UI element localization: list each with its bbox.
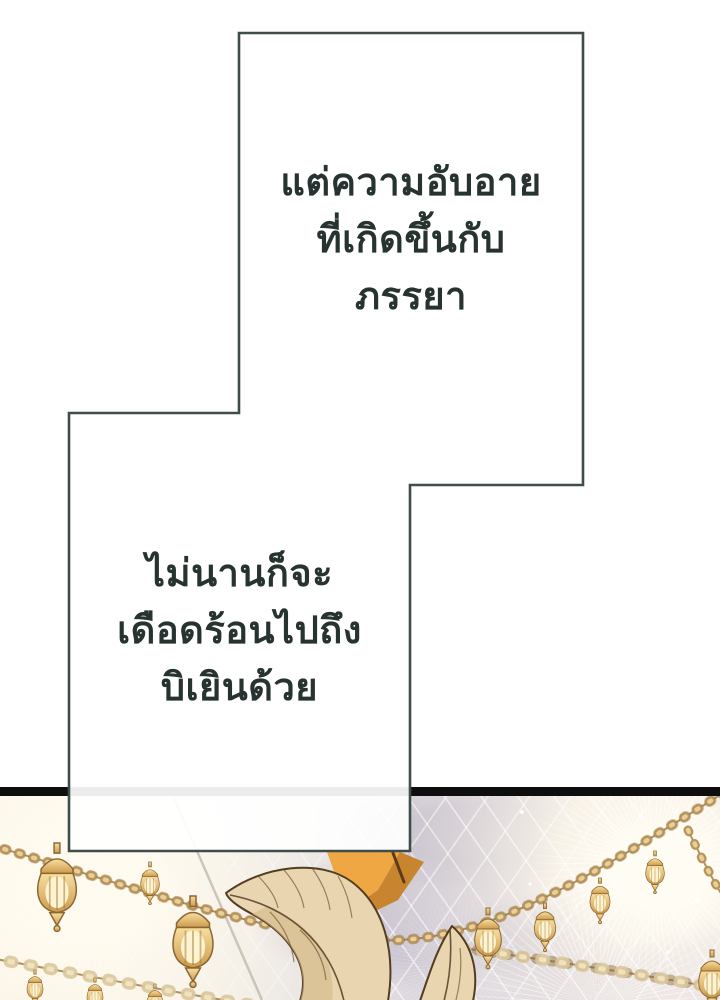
narration-box-2: ไม่นานก็จะ เดือดร้อนไปถึง บิเยินด้วย <box>69 413 410 851</box>
narration-text-line: เดือดร้อนไปถึง <box>117 608 362 652</box>
narration-text-line: บิเยินด้วย <box>161 665 318 709</box>
narration-text-line: ภรรยา <box>355 274 467 318</box>
narration-text-line: ไม่นานก็จะ <box>146 551 333 595</box>
narration-text-line: ที่เกิดขึ้นกับ <box>317 217 506 261</box>
chain-garland <box>688 830 720 895</box>
narration-text-line: แต่ความอับอาย <box>280 160 541 204</box>
comic-panel: แต่ความอับอาย ที่เกิดขึ้นกับ ภรรยา ไม่นา… <box>0 0 720 1000</box>
